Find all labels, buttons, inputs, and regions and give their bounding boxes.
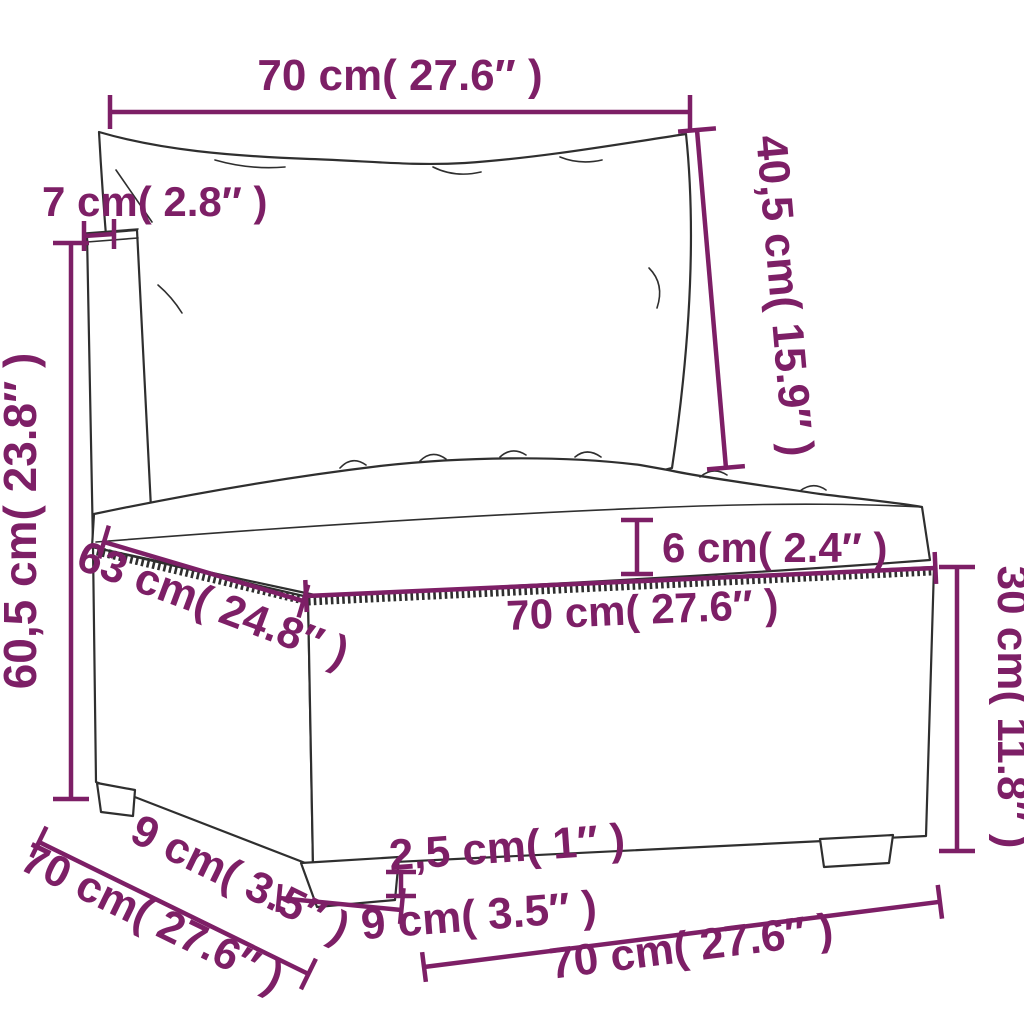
dim-label-cushion-thickness: 6 cm( 2.4″ ) xyxy=(662,524,888,571)
dim-label-back-height: 40,5 cm( 15.9″ ) xyxy=(746,133,822,458)
dim-label-base-height: 30 cm( 11.8″ ) xyxy=(988,566,1024,849)
foot-back-left xyxy=(97,783,135,816)
sofa-dimension-diagram: 70 cm( 27.6″ ) 7 cm( 2.8″ ) 40,5 cm( 15.… xyxy=(0,0,1024,1024)
dim-back-height: 40,5 cm( 15.9″ ) xyxy=(678,128,823,469)
dim-base-height: 30 cm( 11.8″ ) xyxy=(939,566,1024,851)
dimension-diagram-canvas: 70 cm( 27.6″ ) 7 cm( 2.8″ ) 40,5 cm( 15.… xyxy=(0,0,1024,1024)
dim-label-frame-thickness: 7 cm( 2.8″ ) xyxy=(42,178,268,225)
dim-total-height: 60,5 cm( 23.8″ ) xyxy=(0,243,89,799)
dim-label-total-height: 60,5 cm( 23.8″ ) xyxy=(0,353,46,690)
foot-front-right xyxy=(820,835,893,867)
sofa-line-art xyxy=(86,132,934,907)
dim-back-width: 70 cm( 27.6″ ) xyxy=(110,51,690,129)
dim-label-back-width: 70 cm( 27.6″ ) xyxy=(257,51,542,100)
